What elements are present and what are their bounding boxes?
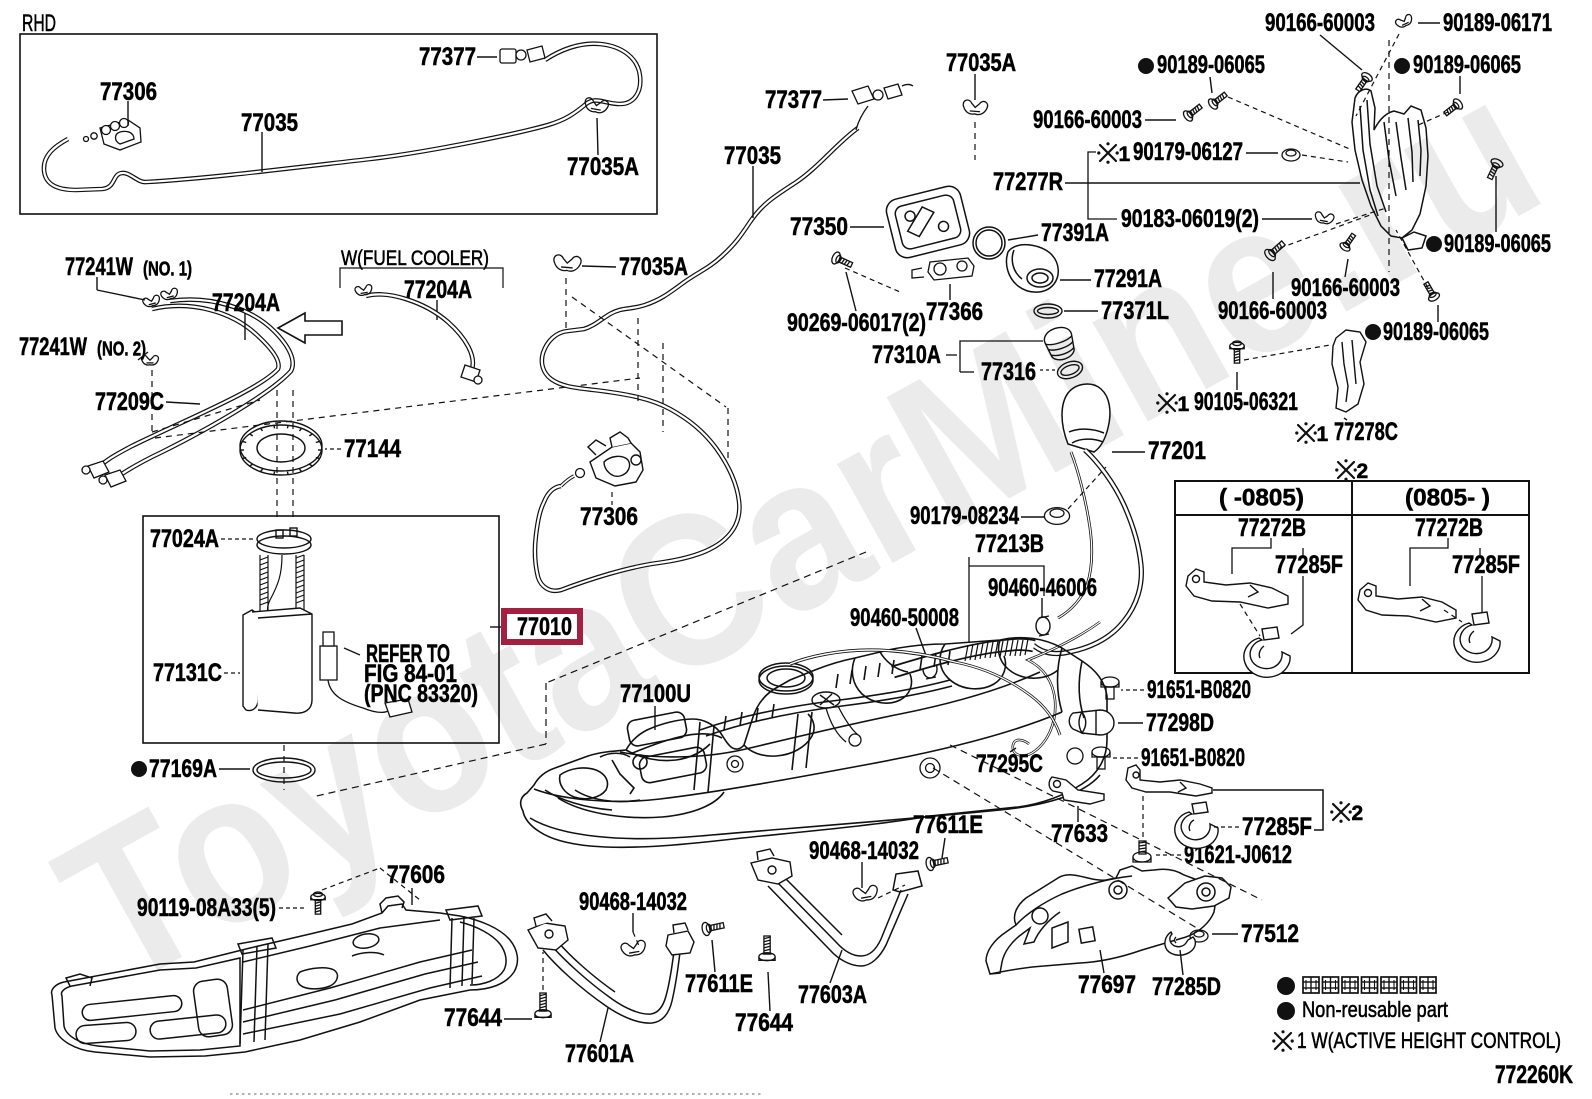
- svg-text:90189-06065: 90189-06065: [1444, 230, 1551, 258]
- svg-text:90105-06321: 90105-06321: [1194, 388, 1298, 416]
- svg-text:77209C: 77209C: [95, 388, 164, 416]
- svg-text:77603A: 77603A: [798, 981, 867, 1009]
- svg-text:77035A: 77035A: [946, 49, 1016, 77]
- svg-text:77169A: 77169A: [149, 755, 217, 783]
- svg-text:77512: 77512: [1241, 920, 1299, 948]
- svg-text:77377: 77377: [419, 43, 476, 71]
- svg-text:77377: 77377: [765, 86, 822, 114]
- svg-text:77644: 77644: [735, 1009, 793, 1037]
- svg-text:90119-08A33(5): 90119-08A33(5): [137, 894, 276, 922]
- svg-text:90183-06019(2): 90183-06019(2): [1121, 205, 1259, 233]
- svg-text:77611E: 77611E: [913, 811, 983, 839]
- svg-text:( -0805): ( -0805): [1219, 484, 1304, 511]
- svg-text:77350: 77350: [790, 213, 848, 241]
- svg-text:(NO. 1): (NO. 1): [143, 258, 192, 280]
- svg-text:RHD: RHD: [22, 10, 56, 37]
- svg-text:90189-06065: 90189-06065: [1383, 318, 1489, 346]
- svg-text:77035: 77035: [724, 142, 781, 170]
- svg-text:90166-60003: 90166-60003: [1291, 274, 1400, 302]
- svg-text:772260K: 772260K: [1495, 1061, 1573, 1089]
- svg-text:90189-06171: 90189-06171: [1443, 9, 1552, 37]
- svg-text:77201: 77201: [1148, 437, 1206, 465]
- svg-text:2: 2: [1357, 460, 1369, 483]
- svg-text:90189-06065: 90189-06065: [1157, 51, 1265, 79]
- svg-text:90166-60003: 90166-60003: [1033, 106, 1142, 134]
- svg-text:77241W: 77241W: [65, 253, 133, 281]
- svg-text:2: 2: [1352, 802, 1364, 825]
- svg-text:77035A: 77035A: [567, 153, 639, 181]
- svg-text:W(FUEL COOLER): W(FUEL COOLER): [341, 247, 489, 270]
- svg-text:1: 1: [1317, 423, 1329, 446]
- svg-text:(0805- ): (0805- ): [1405, 484, 1490, 511]
- svg-text:77298D: 77298D: [1146, 709, 1214, 737]
- svg-text:1: 1: [1178, 393, 1190, 416]
- svg-text:90460-50008: 90460-50008: [850, 604, 959, 632]
- svg-text:77204A: 77204A: [212, 289, 280, 317]
- svg-text:90179-08234: 90179-08234: [910, 502, 1019, 530]
- svg-text:(NO. 2): (NO. 2): [97, 338, 146, 360]
- svg-text:90189-06065: 90189-06065: [1413, 51, 1521, 79]
- svg-text:90460-46006: 90460-46006: [988, 574, 1097, 602]
- svg-text:77391A: 77391A: [1041, 219, 1109, 247]
- svg-text:90468-14032: 90468-14032: [579, 888, 687, 916]
- svg-text:90179-06127: 90179-06127: [1133, 138, 1243, 166]
- svg-text:77277R: 77277R: [993, 168, 1063, 196]
- svg-text:77144: 77144: [344, 435, 401, 463]
- svg-text:90269-06017(2): 90269-06017(2): [787, 309, 926, 337]
- svg-text:77272B: 77272B: [1238, 514, 1306, 542]
- svg-text:77316: 77316: [981, 358, 1036, 386]
- svg-text:90166-60003: 90166-60003: [1265, 9, 1375, 37]
- svg-text:77306: 77306: [580, 503, 638, 531]
- svg-text:77024A: 77024A: [150, 525, 219, 553]
- svg-text:77035: 77035: [241, 109, 298, 137]
- svg-text:77285D: 77285D: [1152, 973, 1221, 1001]
- svg-text:Non-reusable part: Non-reusable part: [1302, 997, 1448, 1022]
- svg-text:77644: 77644: [444, 1004, 502, 1032]
- svg-text:77633: 77633: [1051, 820, 1108, 848]
- svg-text:77606: 77606: [387, 861, 445, 889]
- svg-text:77035A: 77035A: [619, 253, 688, 281]
- svg-text:90468-14032: 90468-14032: [809, 837, 919, 865]
- svg-text:77611E: 77611E: [685, 970, 753, 998]
- svg-text:77310A: 77310A: [872, 341, 941, 369]
- svg-text:77272B: 77272B: [1415, 514, 1483, 542]
- svg-text:(PNC 83320): (PNC 83320): [364, 680, 478, 708]
- svg-text:91651-B0820: 91651-B0820: [1147, 676, 1251, 704]
- svg-text:77371L: 77371L: [1101, 297, 1169, 325]
- svg-text:77278C: 77278C: [1334, 418, 1398, 446]
- svg-text:77285F: 77285F: [1275, 551, 1343, 579]
- svg-text:77601A: 77601A: [565, 1040, 634, 1068]
- svg-text:77366: 77366: [926, 298, 983, 326]
- svg-text:77100U: 77100U: [620, 680, 691, 708]
- svg-text:77285F: 77285F: [1452, 551, 1520, 579]
- svg-text:77010: 77010: [517, 613, 572, 641]
- svg-text:1 W(ACTIVE HEIGHT CONTROL): 1 W(ACTIVE HEIGHT CONTROL): [1297, 1028, 1561, 1053]
- svg-text:1: 1: [1119, 143, 1131, 166]
- svg-text:91651-B0820: 91651-B0820: [1141, 744, 1245, 772]
- svg-text:77213B: 77213B: [975, 530, 1044, 558]
- svg-text:77285F: 77285F: [1242, 813, 1312, 841]
- svg-text:77241W: 77241W: [19, 333, 87, 361]
- svg-text:77291A: 77291A: [1094, 265, 1162, 293]
- svg-text:77131C: 77131C: [153, 659, 222, 687]
- svg-text:77295C: 77295C: [976, 750, 1043, 778]
- svg-text:77697: 77697: [1078, 971, 1136, 999]
